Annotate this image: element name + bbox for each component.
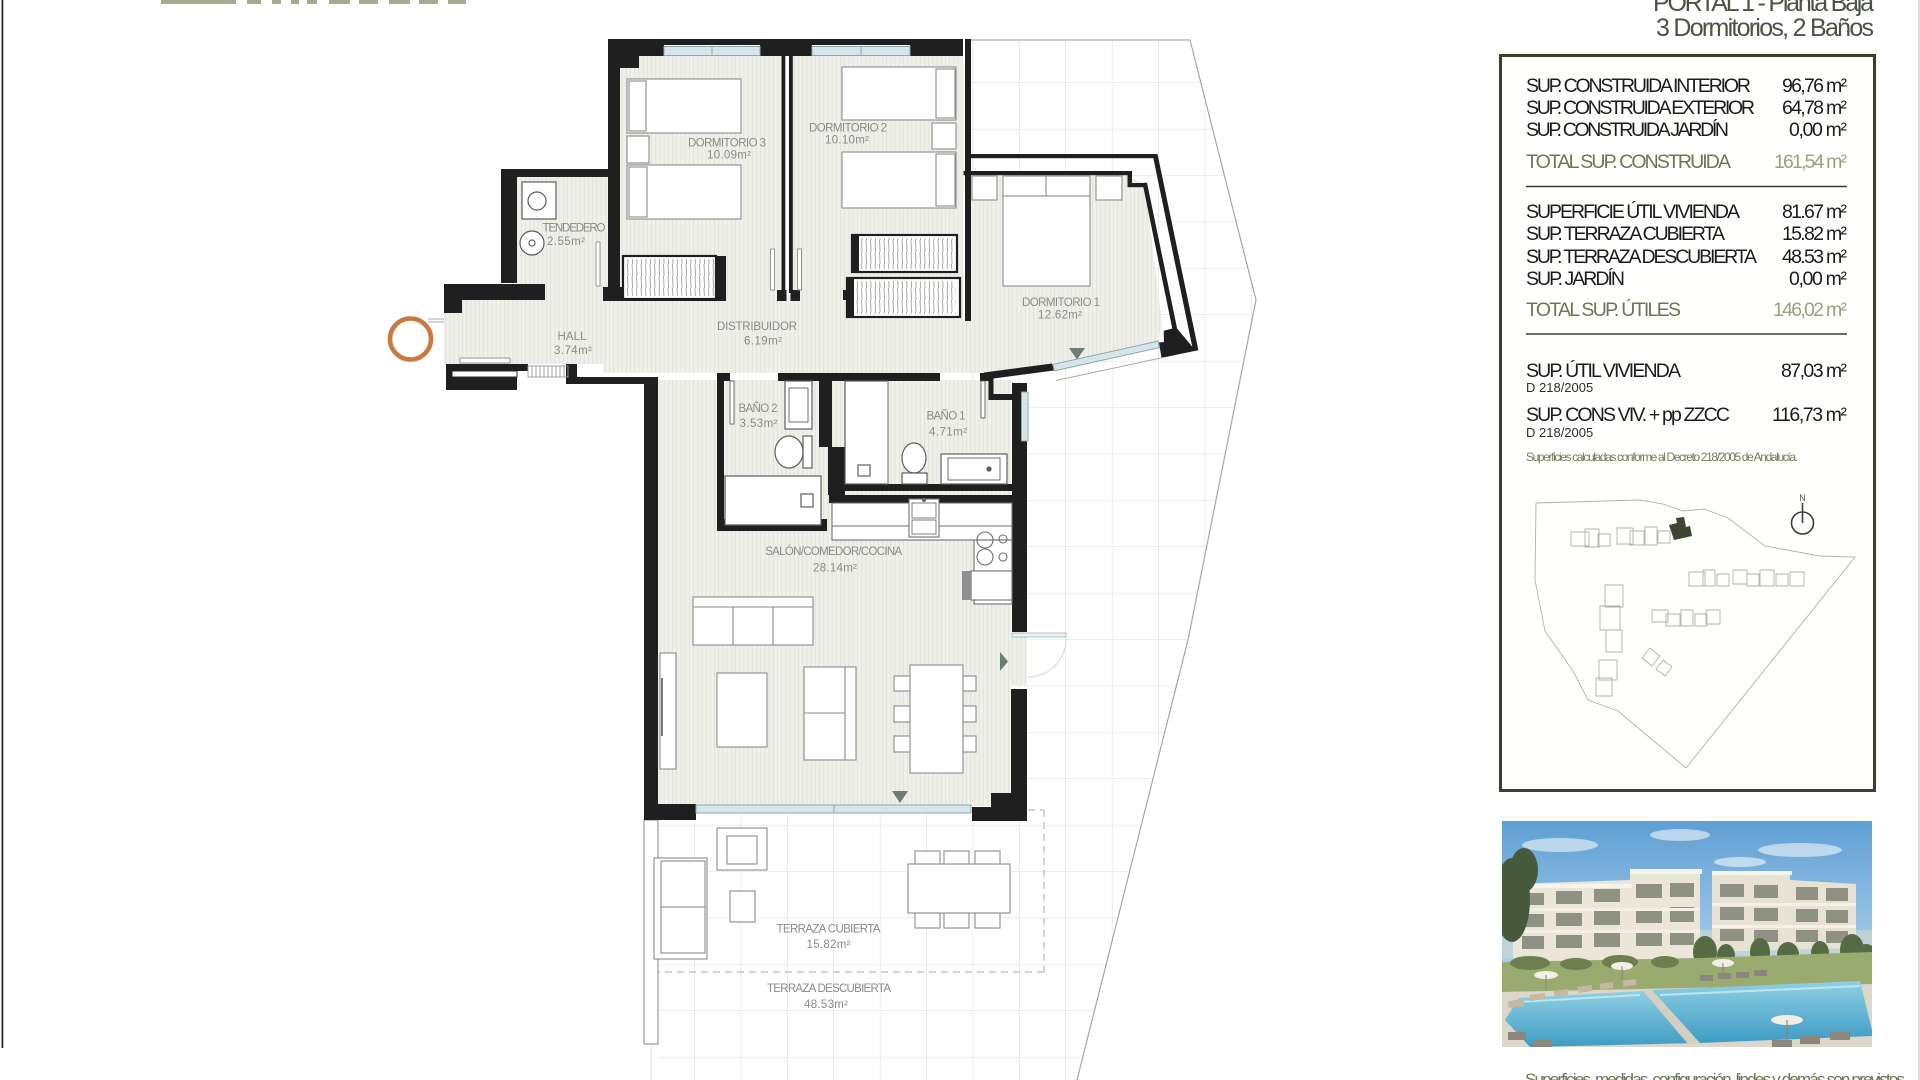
svg-text:10.10m²: 10.10m² — [825, 135, 869, 147]
svg-text:15.82 m²: 15.82 m² — [1782, 223, 1848, 245]
svg-text:D 218/2005: D 218/2005 — [1526, 380, 1593, 395]
svg-text:12.62m²: 12.62m² — [1038, 310, 1082, 322]
svg-text:DORMITORIO 1: DORMITORIO 1 — [1022, 297, 1100, 309]
svg-text:SUP. CONSTRUIDA JARDÍN: SUP. CONSTRUIDA JARDÍN — [1526, 118, 1729, 141]
svg-text:TERRAZA DESCUBIERTA: TERRAZA DESCUBIERTA — [767, 983, 891, 995]
svg-text:SUPERFICIE ÚTIL VIVIENDA: SUPERFICIE ÚTIL VIVIENDA — [1526, 200, 1740, 223]
svg-text:N: N — [1799, 493, 1806, 503]
svg-text:146,02 m²: 146,02 m² — [1773, 299, 1848, 321]
svg-text:DORMITORIO 3: DORMITORIO 3 — [688, 138, 766, 150]
svg-text:161,54 m²: 161,54 m² — [1774, 151, 1848, 173]
svg-text:0,00 m²: 0,00 m² — [1789, 268, 1848, 290]
svg-text:3 Dormitorios, 2 Baños: 3 Dormitorios, 2 Baños — [1656, 14, 1874, 42]
svg-text:96,76 m²: 96,76 m² — [1782, 75, 1848, 97]
svg-text:81.67 m²: 81.67 m² — [1782, 201, 1848, 223]
svg-text:SUP. TERRAZA CUBIERTA: SUP. TERRAZA CUBIERTA — [1526, 223, 1725, 245]
svg-text:2.55m²: 2.55m² — [547, 236, 585, 248]
svg-text:D 218/2005: D 218/2005 — [1526, 425, 1593, 440]
svg-text:HALL: HALL — [558, 331, 588, 343]
svg-text:SUP. CONS VIV. + pp ZZCC: SUP. CONS VIV. + pp ZZCC — [1526, 404, 1730, 426]
svg-text:TOTAL SUP. CONSTRUIDA: TOTAL SUP. CONSTRUIDA — [1526, 151, 1731, 173]
svg-text:SUP. ÚTIL VIVIENDA: SUP. ÚTIL VIVIENDA — [1526, 359, 1681, 382]
svg-text:3.74m²: 3.74m² — [554, 345, 592, 357]
svg-text:10.09m²: 10.09m² — [707, 150, 751, 162]
svg-text:TERRAZA CUBIERTA: TERRAZA CUBIERTA — [777, 924, 881, 936]
svg-text:64,78 m²: 64,78 m² — [1782, 97, 1848, 119]
svg-text:15.82m²: 15.82m² — [807, 939, 851, 951]
svg-text:48.53m²: 48.53m² — [804, 999, 848, 1011]
svg-text:TOTAL SUP. ÚTILES: TOTAL SUP. ÚTILES — [1526, 298, 1681, 321]
svg-text:87,03 m²: 87,03 m² — [1781, 360, 1848, 382]
svg-text:SUP. CONSTRUIDA EXTERIOR: SUP. CONSTRUIDA EXTERIOR — [1526, 97, 1755, 119]
svg-text:SUP. JARDÍN: SUP. JARDÍN — [1526, 267, 1625, 290]
svg-text:SUP. CONSTRUIDA INTERIOR: SUP. CONSTRUIDA INTERIOR — [1526, 75, 1751, 97]
svg-text:DORMITORIO 2: DORMITORIO 2 — [809, 123, 887, 135]
svg-text:Superficies calculadas conform: Superficies calculadas conforme al Decre… — [1526, 450, 1798, 464]
svg-text:BAÑO 2: BAÑO 2 — [739, 402, 778, 415]
svg-text:4.71m²: 4.71m² — [929, 427, 967, 439]
svg-text:BAÑO 1: BAÑO 1 — [927, 410, 966, 423]
svg-text:DISTRIBUIDOR: DISTRIBUIDOR — [717, 321, 797, 333]
svg-text:6.19m²: 6.19m² — [744, 336, 782, 348]
svg-text:3.53m²: 3.53m² — [740, 418, 778, 430]
svg-text:28.14m²: 28.14m² — [813, 563, 857, 575]
svg-text:SUP. TERRAZA DESCUBIERTA: SUP. TERRAZA DESCUBIERTA — [1526, 246, 1757, 268]
svg-text:TENDEDERO: TENDEDERO — [543, 223, 606, 235]
svg-text:0,00 m²: 0,00 m² — [1789, 119, 1848, 141]
svg-text:116,73 m²: 116,73 m² — [1772, 404, 1848, 426]
svg-text:SALÓN/COMEDOR/COCINA: SALÓN/COMEDOR/COCINA — [765, 545, 902, 558]
svg-text:48.53 m²: 48.53 m² — [1782, 246, 1848, 268]
svg-text:Superficies, medidas, configur: Superficies, medidas, configuración, lin… — [1525, 1070, 1905, 1080]
